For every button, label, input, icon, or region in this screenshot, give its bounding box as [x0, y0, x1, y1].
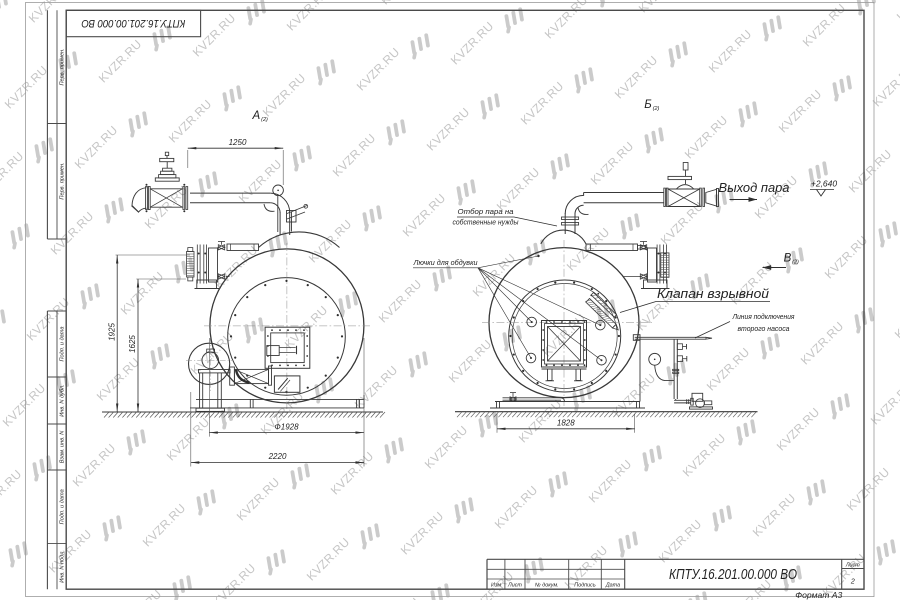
- svg-text:(2): (2): [261, 117, 268, 123]
- svg-text:Выход пара: Выход пара: [719, 180, 790, 195]
- svg-text:КПТУ.16.201.00.000 ВО: КПТУ.16.201.00.000 ВО: [669, 567, 797, 583]
- svg-text:1828: 1828: [557, 419, 575, 428]
- svg-text:Линия подключения: Линия подключения: [732, 313, 795, 321]
- svg-text:№ докум.: № докум.: [535, 583, 559, 589]
- svg-text:1925: 1925: [107, 323, 116, 341]
- svg-text:1250: 1250: [229, 138, 247, 147]
- svg-text:Клапан взрывной: Клапан взрывной: [657, 286, 769, 301]
- svg-text:Взам. инв. N: Взам. инв. N: [59, 430, 65, 464]
- svg-text:Изм: Изм: [491, 583, 501, 589]
- svg-text:Подп. и дата: Подп. и дата: [59, 489, 65, 524]
- svg-text:Лючки для обдувки: Лючки для обдувки: [412, 259, 477, 267]
- svg-text:+2,640: +2,640: [811, 179, 838, 189]
- svg-text:Отбор пара на: Отбор пара на: [458, 208, 514, 216]
- svg-text:второго насоса: второго насоса: [738, 326, 790, 333]
- svg-text:А: А: [251, 110, 260, 122]
- svg-text:Подп. и дата: Подп. и дата: [59, 326, 65, 361]
- svg-text:Лист: Лист: [507, 583, 522, 589]
- svg-text:Перв. примен.: Перв. примен.: [59, 48, 65, 85]
- svg-text:Перв. примен.: Перв. примен.: [59, 162, 65, 199]
- svg-text:Ф1928: Ф1928: [274, 422, 299, 431]
- svg-text:Формат А3: Формат А3: [795, 590, 842, 600]
- svg-text:2: 2: [850, 579, 855, 586]
- svg-text:Инв. N дубл.: Инв. N дубл.: [59, 384, 65, 416]
- svg-text:Дата: Дата: [605, 583, 620, 589]
- svg-text:Б: Б: [644, 99, 652, 111]
- svg-text:(2): (2): [792, 260, 799, 266]
- svg-text:(2): (2): [653, 106, 660, 112]
- svg-text:Подпись: Подпись: [574, 583, 596, 589]
- svg-text:Инв. N подл.: Инв. N подл.: [59, 550, 65, 583]
- svg-text:1625: 1625: [128, 335, 137, 353]
- svg-text:КПТУ.16.201.00.000 ВО: КПТУ.16.201.00.000 ВО: [81, 17, 185, 29]
- svg-text:Лист: Лист: [845, 562, 860, 568]
- svg-text:собственные нужды: собственные нужды: [453, 219, 520, 227]
- svg-text:В: В: [784, 253, 792, 265]
- svg-text:2220: 2220: [268, 452, 287, 461]
